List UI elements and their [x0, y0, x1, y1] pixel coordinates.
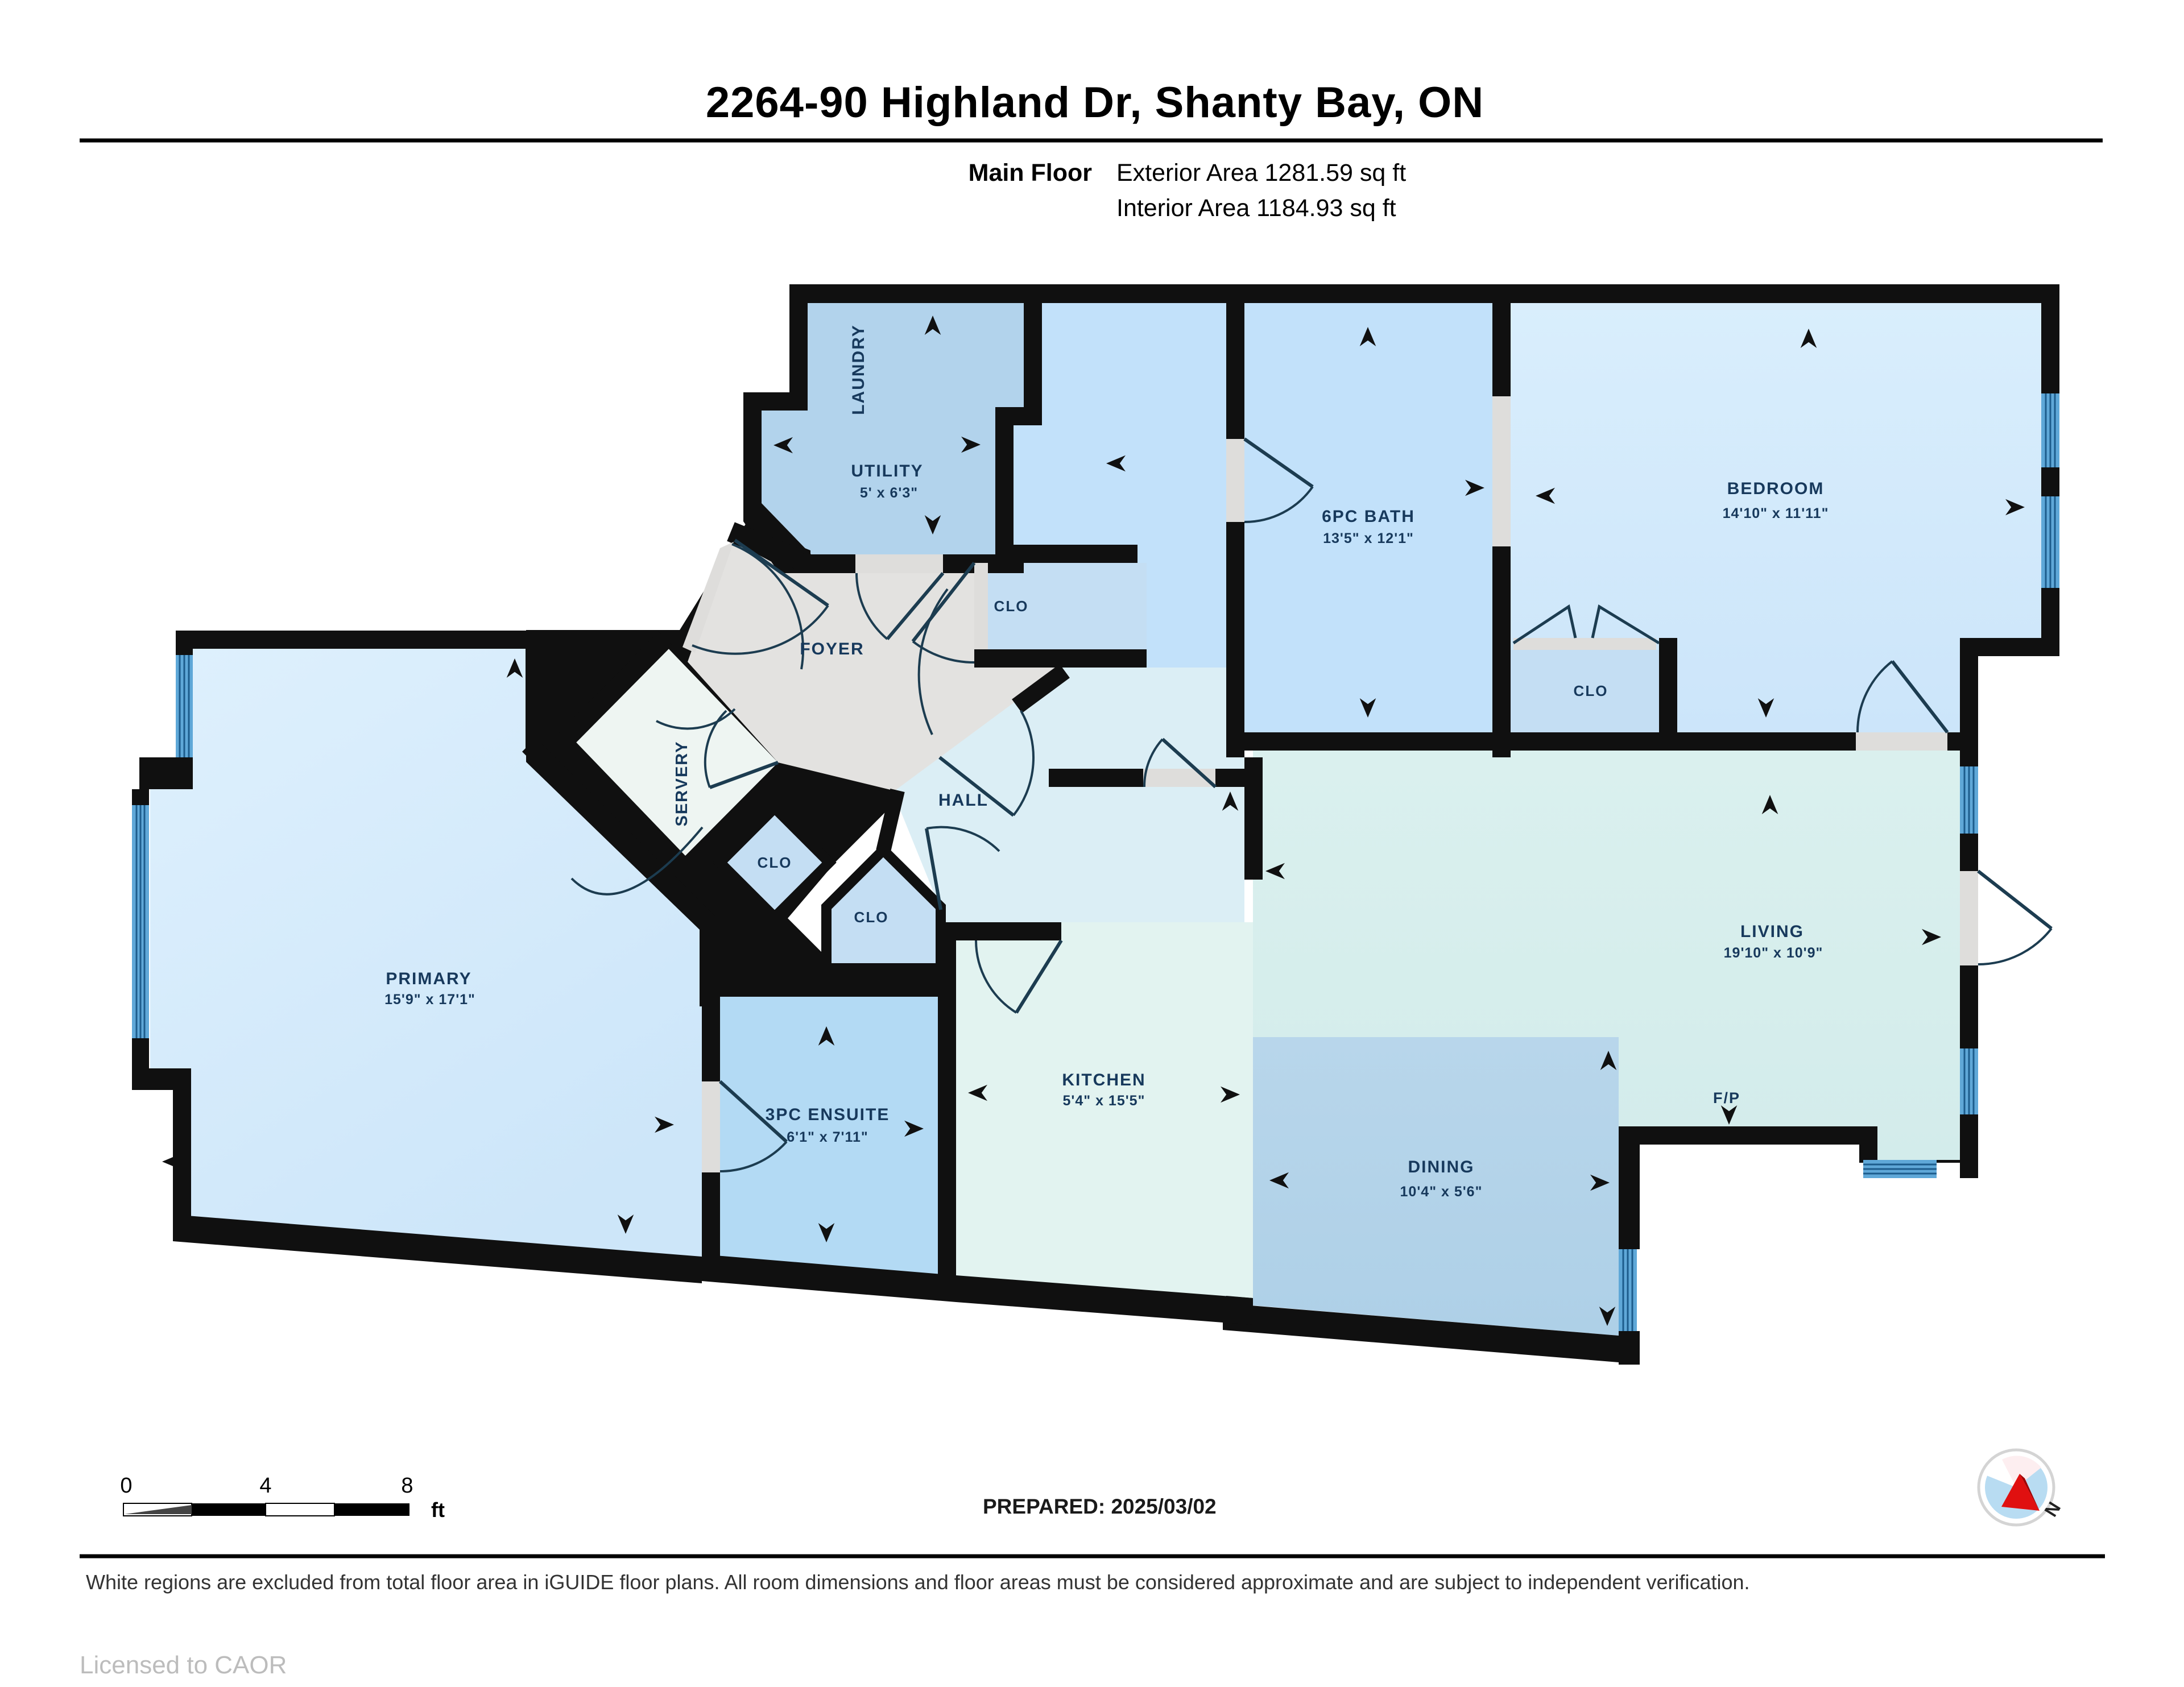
svg-text:13'5" x 12'1": 13'5" x 12'1"	[1323, 530, 1414, 546]
svg-text:BEDROOM: BEDROOM	[1727, 479, 1825, 498]
svg-text:FOYER: FOYER	[800, 640, 864, 658]
svg-text:5'4" x 15'5": 5'4" x 15'5"	[1063, 1093, 1145, 1109]
svg-text:10'4" x 5'6": 10'4" x 5'6"	[1400, 1184, 1483, 1200]
svg-text:Interior Area 1184.93 sq ft: Interior Area 1184.93 sq ft	[1116, 194, 1396, 222]
svg-text:LIVING: LIVING	[1740, 922, 1804, 941]
svg-text:KITCHEN: KITCHEN	[1062, 1071, 1145, 1089]
svg-text:4: 4	[259, 1474, 271, 1498]
svg-text:HALL: HALL	[938, 791, 988, 810]
svg-text:DINING: DINING	[1408, 1158, 1475, 1176]
svg-text:0: 0	[120, 1474, 132, 1498]
svg-text:CLO: CLO	[758, 854, 792, 871]
svg-text:CLO: CLO	[1574, 682, 1608, 699]
svg-text:5' x 6'3": 5' x 6'3"	[860, 485, 918, 501]
svg-text:19'10" x 10'9": 19'10" x 10'9"	[1724, 945, 1823, 961]
svg-text:CLO: CLO	[854, 909, 889, 926]
svg-text:3PC ENSUITE: 3PC ENSUITE	[766, 1105, 890, 1124]
svg-text:F/P: F/P	[1713, 1089, 1740, 1106]
svg-text:SERVERY: SERVERY	[673, 741, 691, 827]
svg-text:6'1" x 7'11": 6'1" x 7'11"	[787, 1129, 868, 1145]
svg-text:2264-90 Highland Dr, Shanty Ba: 2264-90 Highland Dr, Shanty Bay, ON	[706, 78, 1484, 127]
svg-text:Licensed to CAOR: Licensed to CAOR	[80, 1651, 287, 1679]
svg-text:PREPARED: 2025/03/02: PREPARED: 2025/03/02	[983, 1495, 1217, 1518]
svg-text:Main Floor: Main Floor	[969, 159, 1093, 186]
svg-text:LAUNDRY: LAUNDRY	[849, 324, 868, 415]
svg-text:CLO: CLO	[994, 598, 1029, 615]
svg-text:Exterior Area 1281.59 sq ft: Exterior Area 1281.59 sq ft	[1116, 159, 1406, 186]
svg-text:White regions are excluded fro: White regions are excluded from total fl…	[86, 1570, 1750, 1594]
svg-text:6PC BATH: 6PC BATH	[1322, 507, 1415, 526]
svg-text:ft: ft	[431, 1498, 445, 1522]
svg-text:UTILITY: UTILITY	[851, 462, 923, 480]
svg-text:15'9" x 17'1": 15'9" x 17'1"	[384, 992, 475, 1008]
svg-text:8: 8	[401, 1474, 413, 1498]
svg-text:PRIMARY: PRIMARY	[386, 969, 471, 988]
svg-text:14'10" x 11'11": 14'10" x 11'11"	[1723, 505, 1829, 521]
